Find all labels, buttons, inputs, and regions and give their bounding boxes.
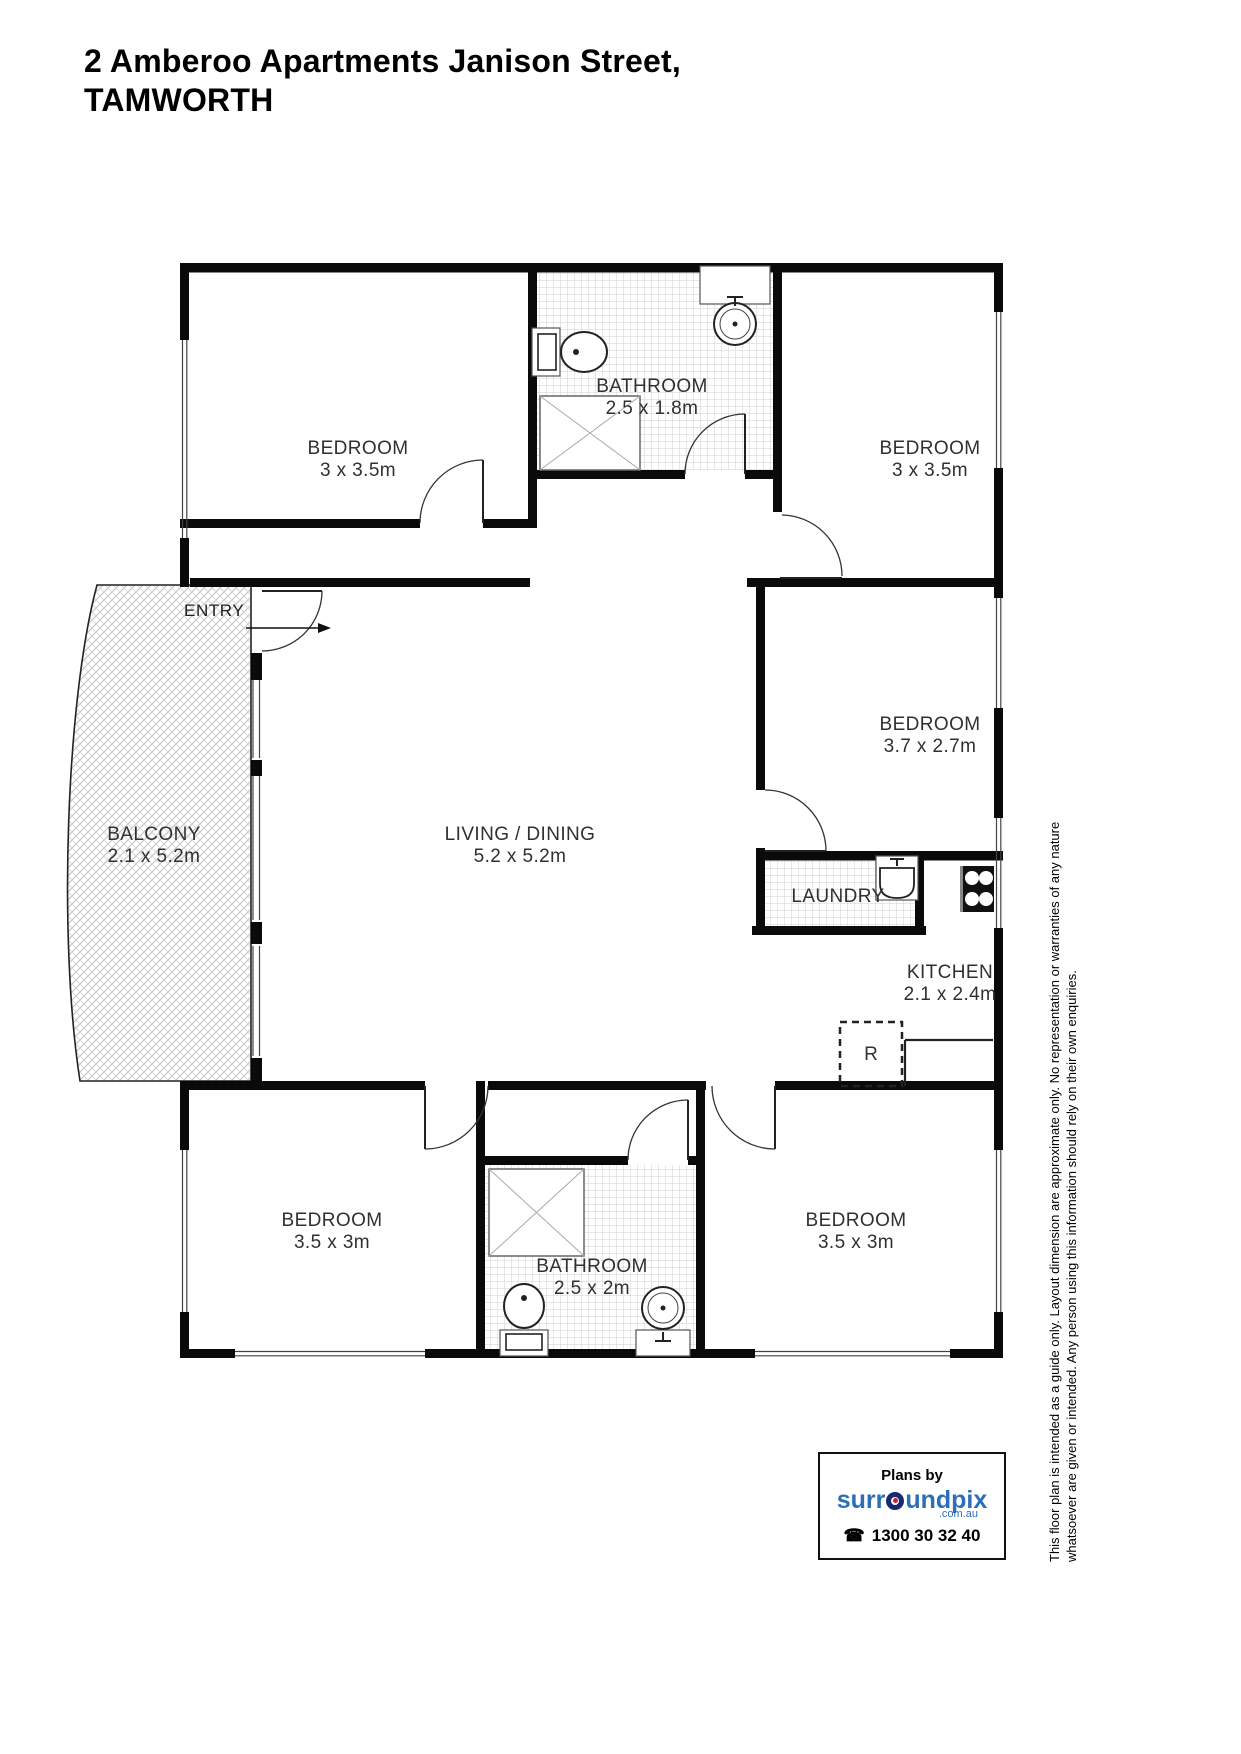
room-label-bathroom-bottom: BATHROOM 2.5 x 2m	[536, 1256, 648, 1299]
wall-outer-left-d	[180, 1312, 189, 1358]
wall-bath-top-bottom-a	[528, 470, 685, 479]
window-bed-bl-left	[183, 1150, 187, 1312]
door-bed-br	[712, 1086, 775, 1149]
floor-plan-page: { "title": { "line1": "2 Amberoo Apartme…	[0, 0, 1241, 1754]
toilet-icon-top	[538, 332, 607, 372]
room-name: BATHROOM	[596, 376, 708, 398]
room-name: BEDROOM	[880, 714, 981, 736]
plans-by-label: Plans by	[881, 1467, 943, 1484]
room-label-kitchen: KITCHEN 2.1 x 2.4m	[904, 962, 997, 1005]
door-bathroom-bottom	[628, 1100, 688, 1160]
kitchen-counter	[905, 1040, 993, 1086]
brand-suffix: .com.au	[939, 1509, 978, 1520]
window-bed-br-bottom	[755, 1352, 950, 1356]
wall-outer-right-e	[994, 1312, 1003, 1358]
window-balcony-glass-1	[253, 680, 260, 758]
room-label-entry: ENTRY	[184, 601, 244, 621]
door-bed-right	[765, 790, 826, 851]
wall-bed-right-top	[747, 578, 1003, 587]
door-bed-tr	[780, 515, 842, 578]
room-dims: 3.5 x 3m	[282, 1232, 383, 1254]
window-bed-tl-left	[183, 340, 187, 538]
room-dims: 3 x 3.5m	[880, 460, 981, 482]
wall-bath-bottom-right	[696, 1081, 705, 1358]
branding-box: Plans by surrundpix .com.au ☎ 1300 30 32…	[818, 1452, 1006, 1560]
wall-bed-tl-bottom-a	[180, 519, 420, 528]
wall-outer-right-a	[994, 263, 1003, 312]
wall-outer-top	[180, 263, 1003, 273]
room-label-bathroom-top: BATHROOM 2.5 x 1.8m	[596, 376, 708, 419]
room-dims: 2.5 x 2m	[536, 1278, 648, 1300]
wall-outer-bottom-b	[425, 1349, 755, 1358]
phone-row: ☎ 1300 30 32 40	[844, 1526, 981, 1546]
wall-bath-bottom-top-a	[480, 1156, 628, 1165]
door-bed-tl	[420, 460, 483, 523]
room-name: KITCHEN	[904, 962, 997, 984]
cooktop-icon	[960, 866, 994, 912]
disclaimer-line1: This floor plan is intended as a guide o…	[1046, 740, 1063, 1562]
disclaimer-line2: whatsoever are given or intended. Any pe…	[1063, 740, 1080, 1562]
room-dims: 3.5 x 3m	[806, 1232, 907, 1254]
balcony-post-4	[251, 1058, 262, 1081]
room-label-bedroom-bottom-right: BEDROOM 3.5 x 3m	[806, 1210, 907, 1253]
window-bed-right-right	[997, 598, 1001, 708]
wall-bathroom-top-left	[528, 263, 537, 528]
room-dims: 2.5 x 1.8m	[596, 398, 708, 420]
room-label-bedroom-right: BEDROOM 3.7 x 2.7m	[880, 714, 981, 757]
room-name: BEDROOM	[806, 1210, 907, 1232]
telephone-icon: ☎	[844, 1526, 865, 1546]
door-entry	[262, 591, 322, 651]
lens-o-icon	[886, 1492, 904, 1510]
wall-bed-tr-left	[773, 263, 782, 512]
wall-laundry-bottom	[752, 926, 926, 935]
wall-living-bottom-a	[180, 1081, 425, 1090]
shower-icon-bottom	[489, 1169, 584, 1256]
room-dims: 2.1 x 2.4m	[904, 984, 997, 1006]
window-balcony-glass-3	[253, 946, 260, 1056]
brand-text-part1: surr	[837, 1487, 886, 1513]
room-dims: 3.7 x 2.7m	[880, 736, 981, 758]
room-label-bedroom-top-right: BEDROOM 3 x 3.5m	[880, 438, 981, 481]
window-bed-br-right	[997, 1150, 1001, 1312]
wall-living-bottom-b	[488, 1081, 706, 1090]
room-name: BALCONY	[107, 824, 201, 846]
room-name: BEDROOM	[282, 1210, 383, 1232]
wall-bed-right-left-a	[756, 578, 765, 790]
wall-bed-bl-right	[476, 1081, 485, 1358]
room-label-balcony: BALCONY 2.1 x 5.2m	[107, 824, 201, 867]
balcony-post-1	[251, 653, 262, 680]
disclaimer-text: This floor plan is intended as a guide o…	[1046, 740, 1080, 1562]
balcony-post-3	[251, 922, 262, 944]
balcony-post-2	[251, 760, 262, 776]
window-bed-bl-bottom	[235, 1352, 425, 1356]
window-balcony-glass-2	[253, 776, 260, 920]
room-name: BEDROOM	[880, 438, 981, 460]
wall-outer-right-b	[994, 468, 1003, 598]
room-name: BEDROOM	[308, 438, 409, 460]
wall-living-top	[190, 578, 530, 587]
wall-laundry-left	[756, 848, 765, 935]
wall-outer-left-b	[180, 538, 189, 587]
room-name: LIVING / DINING	[445, 824, 596, 846]
entry-arrow-icon	[246, 623, 331, 633]
room-label-living-dining: LIVING / DINING 5.2 x 5.2m	[445, 824, 596, 867]
room-name: LAUNDRY	[791, 886, 884, 908]
room-label-bedroom-bottom-left: BEDROOM 3.5 x 3m	[282, 1210, 383, 1253]
room-dims: 2.1 x 5.2m	[107, 846, 201, 868]
window-kitchen-right	[997, 818, 1001, 928]
wall-outer-right-c	[994, 708, 1003, 818]
wall-outer-left-a	[180, 263, 189, 340]
room-label-bedroom-top-left: BEDROOM 3 x 3.5m	[308, 438, 409, 481]
refrigerator-label: R	[864, 1044, 878, 1066]
room-label-laundry: LAUNDRY	[791, 886, 884, 908]
window-bed-tr-right	[997, 312, 1001, 468]
wall-outer-left-c	[180, 1081, 189, 1150]
room-name: BATHROOM	[536, 1256, 648, 1278]
room-dims: 5.2 x 5.2m	[445, 846, 596, 868]
room-dims: 3 x 3.5m	[308, 460, 409, 482]
phone-number: 1300 30 32 40	[872, 1526, 981, 1546]
